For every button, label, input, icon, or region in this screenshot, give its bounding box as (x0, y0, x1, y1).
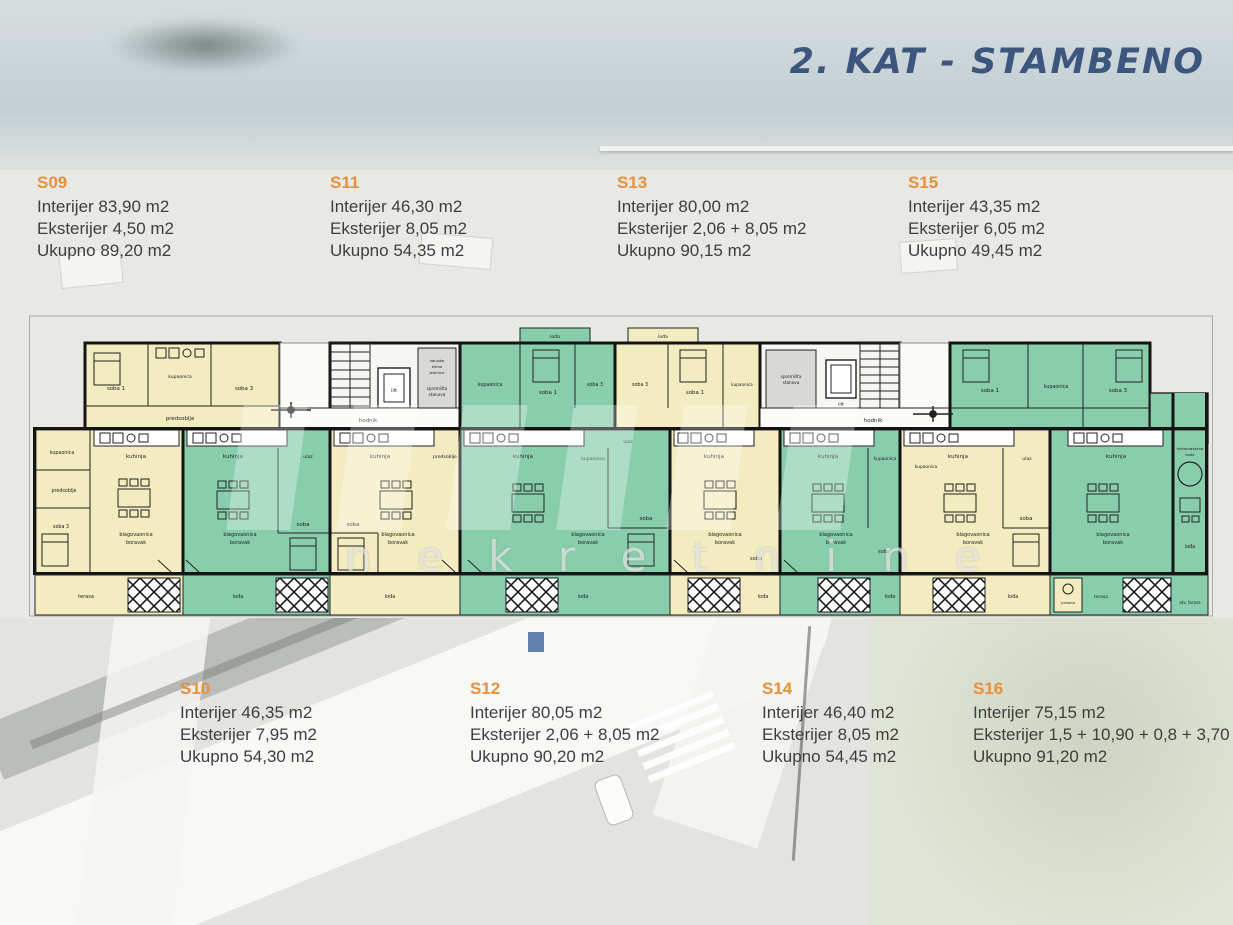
svg-text:ulaz: ulaz (1022, 456, 1032, 462)
stair-core-1: lift vanjske klima jedinice spremišta st… (280, 343, 460, 430)
apartment-top-mid-green: lođa kupaonica soba 1 soba 3 (460, 328, 615, 430)
interior-area: Interijer 75,15 m2 (973, 702, 1230, 724)
svg-text:hidromasažna: hidromasažna (1177, 446, 1204, 451)
storage-room (766, 350, 816, 408)
road-sign (528, 632, 544, 652)
svg-text:boravak: boravak (578, 540, 598, 546)
svg-text:lođa: lođa (758, 594, 769, 600)
svg-text:boravak: boravak (230, 540, 250, 546)
svg-text:spremišta: spremišta (427, 386, 448, 391)
svg-text:lođa: lođa (578, 594, 589, 600)
svg-text:lođa: lođa (885, 594, 896, 600)
svg-text:kuhinja: kuhinja (223, 454, 243, 460)
svg-text:lođa: lođa (385, 594, 396, 600)
svg-text:blagovaonica: blagovaonica (1096, 532, 1129, 538)
svg-text:blagovaonica: blagovaonica (571, 532, 604, 538)
apartment-top-left-cream: soba 1 kupaonica soba 3 predsoblje (85, 343, 280, 430)
background-roads (0, 618, 1233, 925)
svg-text:lođa: lođa (1185, 544, 1195, 550)
svg-text:soba: soba (750, 556, 762, 562)
total-area: Ukupno 90,20 m2 (470, 746, 659, 768)
apartment-s11-plan: kuhinja predsoblje blagovaonica boravak … (330, 430, 460, 575)
svg-text:jedinice: jedinice (428, 370, 445, 375)
svg-text:kupaonica: kupaonica (1044, 384, 1069, 390)
info-block-s13: S13 Interijer 80,00 m2 Eksterijer 2,06 +… (617, 172, 806, 262)
svg-text:blagovaonica: blagovaonica (381, 532, 414, 538)
apartment-s15-plan: kuhinja kupaonica ulaz blagovaonica bora… (900, 430, 1050, 575)
svg-text:kupaonica: kupaonica (581, 456, 605, 462)
apartment-id: S13 (617, 172, 806, 194)
info-block-s09: S09 Interijer 83,90 m2 Eksterijer 4,50 m… (37, 172, 174, 262)
svg-text:blagovaonica: blagovaonica (119, 532, 152, 538)
exterior-area: Eksterijer 7,95 m2 (180, 724, 317, 746)
info-block-s12: S12 Interijer 80,05 m2 Eksterijer 2,06 +… (470, 678, 659, 768)
svg-text:lođa: lođa (550, 334, 560, 340)
apartment-id: S09 (37, 172, 174, 194)
total-area: Ukupno 54,45 m2 (762, 746, 899, 768)
total-area: Ukupno 89,20 m2 (37, 240, 174, 262)
apartment-id: S10 (180, 678, 317, 700)
exterior-area: Eksterijer 2,06 + 8,05 m2 (617, 218, 806, 240)
svg-text:boravak: boravak (1103, 540, 1123, 546)
svg-text:soba 3: soba 3 (235, 386, 254, 392)
interior-area: Interijer 83,90 m2 (37, 196, 174, 218)
corridor (760, 408, 950, 430)
svg-text:klima: klima (432, 364, 443, 369)
svg-text:lift: lift (838, 402, 844, 408)
svg-text:blagovaonica: blagovaonica (956, 532, 989, 538)
storage-room (418, 348, 456, 408)
svg-text:boravak: boravak (715, 540, 735, 546)
svg-text:ulaz: ulaz (303, 454, 313, 460)
svg-text:kuhinja: kuhinja (370, 454, 390, 460)
total-area: Ukupno 90,15 m2 (617, 240, 806, 262)
svg-text:kupaonica: kupaonica (731, 382, 753, 387)
svg-text:soba 1: soba 1 (686, 390, 704, 396)
svg-text:soba 3: soba 3 (1109, 388, 1128, 394)
info-block-s15: S15 Interijer 43,35 m2 Eksterijer 6,05 m… (908, 172, 1045, 262)
svg-text:ulaz: ulaz (623, 439, 633, 445)
exterior-area: Eksterijer 6,05 m2 (908, 218, 1045, 240)
svg-text:kupaonica: kupaonica (50, 450, 75, 456)
svg-text:soba 1: soba 1 (539, 390, 557, 396)
svg-text:soba 3: soba 3 (587, 382, 603, 388)
svg-text:lođa: lođa (233, 594, 244, 600)
svg-text:soba: soba (346, 522, 359, 528)
svg-text:terasa: terasa (1094, 594, 1108, 600)
total-area: Ukupno 54,35 m2 (330, 240, 467, 262)
apartment-s09-plan: kupaonica predsoblje soba 3 kuhinja blag… (35, 430, 183, 575)
page: 2. KAT - STAMBENO S09 Interijer 83,90 m2… (0, 0, 1233, 925)
svg-text:lođa: lođa (1008, 594, 1019, 600)
svg-text:soba 1: soba 1 (981, 388, 999, 394)
stair-core-2: spremišta stanova lift hodnik (760, 343, 950, 430)
background-bridge (600, 146, 1233, 151)
apartment-s12-plan: kuhinja ulaz kupaonica blagovaonica bora… (460, 430, 670, 575)
background-trees (110, 18, 300, 73)
svg-text:soba: soba (639, 516, 652, 522)
exterior-area: Eksterijer 8,05 m2 (330, 218, 467, 240)
svg-text:kuhinja: kuhinja (818, 454, 838, 460)
svg-text:kuhinja: kuhinja (948, 454, 968, 460)
exterior-area: Eksterijer 8,05 m2 (762, 724, 899, 746)
apartment-id: S12 (470, 678, 659, 700)
svg-text:boravak: boravak (826, 540, 846, 546)
apartment-s14-plan: kuhinja kupaonica blagovaonica boravak s… (780, 430, 900, 575)
page-title: 2. KAT - STAMBENO (790, 42, 1205, 82)
svg-text:terasa: terasa (78, 594, 94, 600)
svg-text:predsoblje: predsoblje (166, 416, 195, 422)
info-block-s14: S14 Interijer 46,40 m2 Eksterijer 8,05 m… (762, 678, 899, 768)
svg-text:predsoblje: predsoblje (433, 454, 457, 460)
svg-text:kuhinja: kuhinja (513, 454, 533, 460)
svg-text:kupaonica: kupaonica (478, 382, 503, 388)
svg-text:soba 1: soba 1 (107, 386, 125, 392)
svg-text:soba: soba (296, 522, 309, 528)
svg-text:boravak: boravak (388, 540, 408, 546)
svg-text:predsoblje: predsoblje (51, 488, 76, 494)
svg-text:kuhinja: kuhinja (126, 454, 146, 460)
interior-area: Interijer 46,30 m2 (330, 196, 467, 218)
apartment-id: S15 (908, 172, 1045, 194)
svg-text:hodnik: hodnik (864, 418, 883, 424)
interior-area: Interijer 80,00 m2 (617, 196, 806, 218)
svg-text:spremišta: spremišta (781, 374, 802, 379)
exterior-area: Eksterijer 4,50 m2 (37, 218, 174, 240)
svg-text:lođa: lođa (658, 334, 668, 340)
interior-area: Interijer 43,35 m2 (908, 196, 1045, 218)
interior-area: Interijer 46,40 m2 (762, 702, 899, 724)
svg-text:blagovaonica: blagovaonica (819, 532, 852, 538)
terrace-strip: terasa lođa lođa lođa lođa lođa lođa pra… (35, 575, 1208, 615)
apartment-id: S14 (762, 678, 899, 700)
svg-text:kuhinja: kuhinja (704, 454, 724, 460)
svg-text:soba: soba (878, 549, 890, 555)
svg-text:stanova: stanova (783, 380, 800, 385)
interior-area: Interijer 46,35 m2 (180, 702, 317, 724)
info-block-s11: S11 Interijer 46,30 m2 Eksterijer 8,05 m… (330, 172, 467, 262)
exterior-area: Eksterijer 1,5 + 10,90 + 0,8 + 3,70 (973, 724, 1230, 746)
svg-text:kupaonica: kupaonica (915, 464, 938, 470)
svg-text:blagovaonica: blagovaonica (223, 532, 256, 538)
total-area: Ukupno 49,45 m2 (908, 240, 1045, 262)
total-area: Ukupno 54,30 m2 (180, 746, 317, 768)
svg-text:vanjske: vanjske (430, 358, 445, 363)
background-field (870, 618, 1233, 925)
svg-text:praona: praona (1061, 600, 1075, 605)
info-block-s10: S10 Interijer 46,35 m2 Eksterijer 7,95 m… (180, 678, 317, 768)
car (593, 773, 636, 828)
svg-text:kuhinja: kuhinja (1106, 454, 1126, 460)
info-block-s16: S16 Interijer 75,15 m2 Eksterijer 1,5 + … (973, 678, 1230, 768)
svg-text:stanova: stanova (429, 392, 446, 397)
interior-area: Interijer 80,05 m2 (470, 702, 659, 724)
svg-text:kupaonica: kupaonica (874, 456, 897, 462)
apartment-id: S11 (330, 172, 467, 194)
floor-plan: soba 1 kupaonica soba 3 predsoblje (28, 298, 1216, 628)
apartment-id: S16 (973, 678, 1230, 700)
svg-text:boravak: boravak (963, 540, 983, 546)
exterior-area: Eksterijer 2,06 + 8,05 m2 (470, 724, 659, 746)
svg-text:hodnik: hodnik (359, 418, 378, 424)
svg-text:kupaonica: kupaonica (168, 374, 192, 380)
total-area: Ukupno 91,20 m2 (973, 746, 1230, 768)
svg-text:otv. terasa: otv. terasa (1179, 600, 1201, 605)
apartment-s10-plan: kuhinja ulaz blagovaonica boravak soba (183, 430, 330, 575)
svg-text:blagovaonica: blagovaonica (708, 532, 741, 538)
svg-text:soba: soba (1019, 516, 1032, 522)
apartment-top-mid-cream: lođa soba 3 soba 1 kupaonica (615, 328, 760, 430)
laundry-room (1054, 578, 1082, 612)
svg-text:kada: kada (1185, 452, 1194, 457)
apartment-s13-plan: kuhinja blagovaonica boravak soba (670, 430, 780, 575)
svg-text:lift: lift (391, 388, 397, 394)
svg-text:soba 3: soba 3 (53, 524, 69, 530)
svg-text:soba 3: soba 3 (632, 382, 648, 388)
svg-text:boravak: boravak (126, 540, 146, 546)
